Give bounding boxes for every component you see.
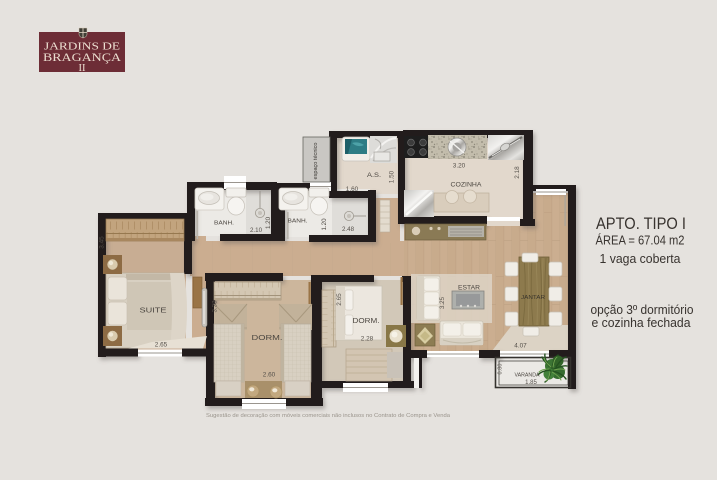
svg-text:ESTAR: ESTAR <box>458 285 480 292</box>
svg-text:2.48: 2.48 <box>342 226 355 233</box>
svg-text:1.20: 1.20 <box>265 216 272 229</box>
svg-text:3.38: 3.38 <box>212 300 219 313</box>
svg-text:II: II <box>79 63 86 74</box>
svg-text:1 vaga coberta: 1 vaga coberta <box>600 251 682 266</box>
svg-text:espaço técnico: espaço técnico <box>313 142 319 179</box>
svg-text:2.18: 2.18 <box>514 166 521 179</box>
svg-text:ÁREA = 67.04 m2: ÁREA = 67.04 m2 <box>596 233 685 248</box>
svg-text:APTO. TIPO I: APTO. TIPO I <box>596 214 686 233</box>
svg-text:3.25: 3.25 <box>439 296 446 309</box>
svg-text:A.S.: A.S. <box>367 172 381 179</box>
svg-text:Sugestão de decoração com móve: Sugestão de decoração com móveis comerci… <box>206 413 451 419</box>
svg-text:1.50: 1.50 <box>389 170 396 183</box>
svg-text:4.07: 4.07 <box>514 343 527 350</box>
svg-text:2.10: 2.10 <box>250 227 263 234</box>
svg-text:DORM.: DORM. <box>252 333 283 342</box>
svg-text:VARANDA: VARANDA <box>515 373 541 379</box>
svg-text:BANH.: BANH. <box>214 221 234 227</box>
svg-text:1.60: 1.60 <box>346 186 359 193</box>
svg-text:0.80: 0.80 <box>498 364 504 375</box>
svg-text:SUITE: SUITE <box>140 308 167 315</box>
svg-text:COZINHA: COZINHA <box>451 182 483 189</box>
svg-text:2.65: 2.65 <box>155 342 168 349</box>
svg-text:3.20: 3.20 <box>453 163 466 170</box>
svg-text:DORM.: DORM. <box>353 316 380 325</box>
svg-text:BANH.: BANH. <box>288 219 308 225</box>
svg-text:3.45: 3.45 <box>99 236 106 249</box>
svg-text:opção 3º dormitório: opção 3º dormitório <box>591 303 694 317</box>
svg-text:2.60: 2.60 <box>263 372 276 379</box>
svg-text:1.20: 1.20 <box>321 218 328 231</box>
svg-text:2.65: 2.65 <box>336 293 343 306</box>
svg-text:e cozinha fechada: e cozinha fechada <box>592 316 691 330</box>
svg-text:JANTAR: JANTAR <box>521 295 545 301</box>
svg-text:1.85: 1.85 <box>525 380 537 386</box>
svg-text:2.28: 2.28 <box>361 336 374 343</box>
